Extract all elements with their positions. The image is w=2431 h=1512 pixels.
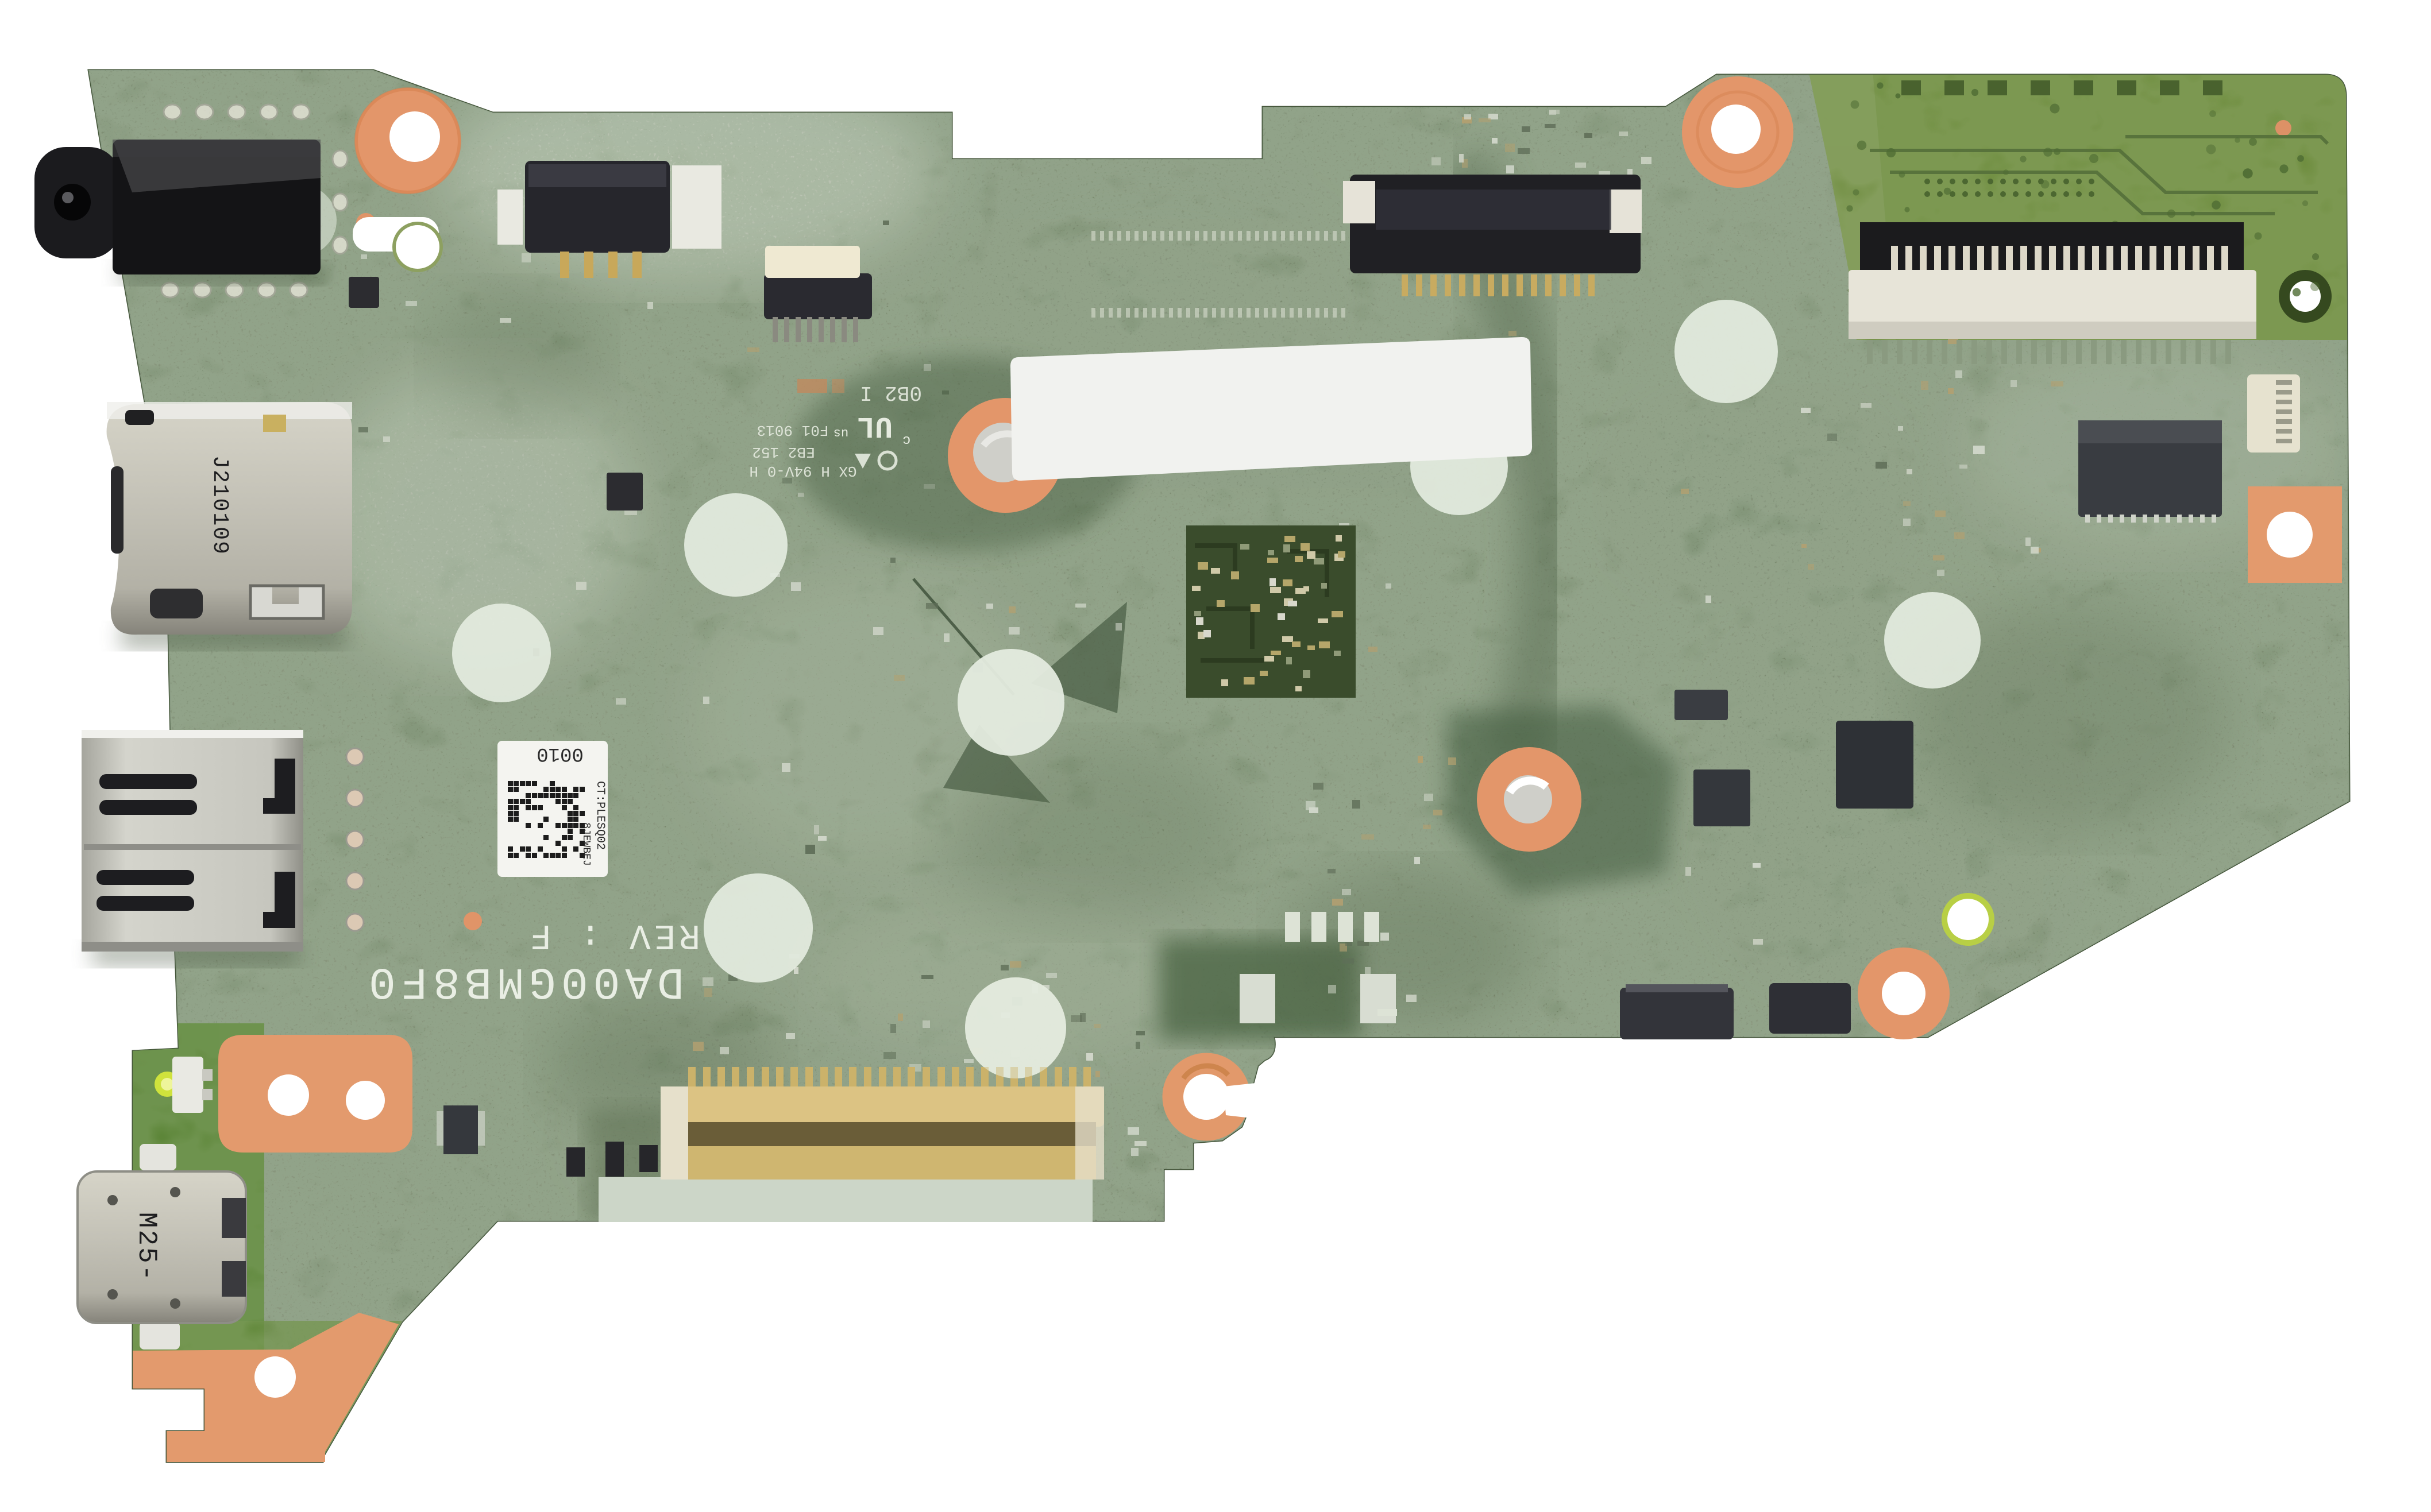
svg-text:J210109: J210109 [207,455,232,555]
svg-text:GX H 94V-0 H: GX H 94V-0 H [749,462,856,479]
svg-text:DA00GMB8F0: DA00GMB8F0 [364,956,684,1006]
svg-text:EB2 152: EB2 152 [752,443,815,461]
svg-text:F01 9013: F01 9013 [757,421,829,439]
svg-text:c: c [902,432,910,447]
svg-text:REV : F: REV : F [527,915,700,956]
svg-text:CT:PLESQ02: CT:PLESQ02 [593,781,607,850]
svg-text:M25-: M25- [132,1212,161,1282]
svg-text:0B2 I: 0B2 I [860,381,922,404]
svg-text:UL: UL [857,409,893,443]
svg-text:8JEWBEJ: 8JEWBEJ [580,822,592,866]
svg-text:0010: 0010 [537,743,584,764]
svg-text:us: us [834,426,848,440]
